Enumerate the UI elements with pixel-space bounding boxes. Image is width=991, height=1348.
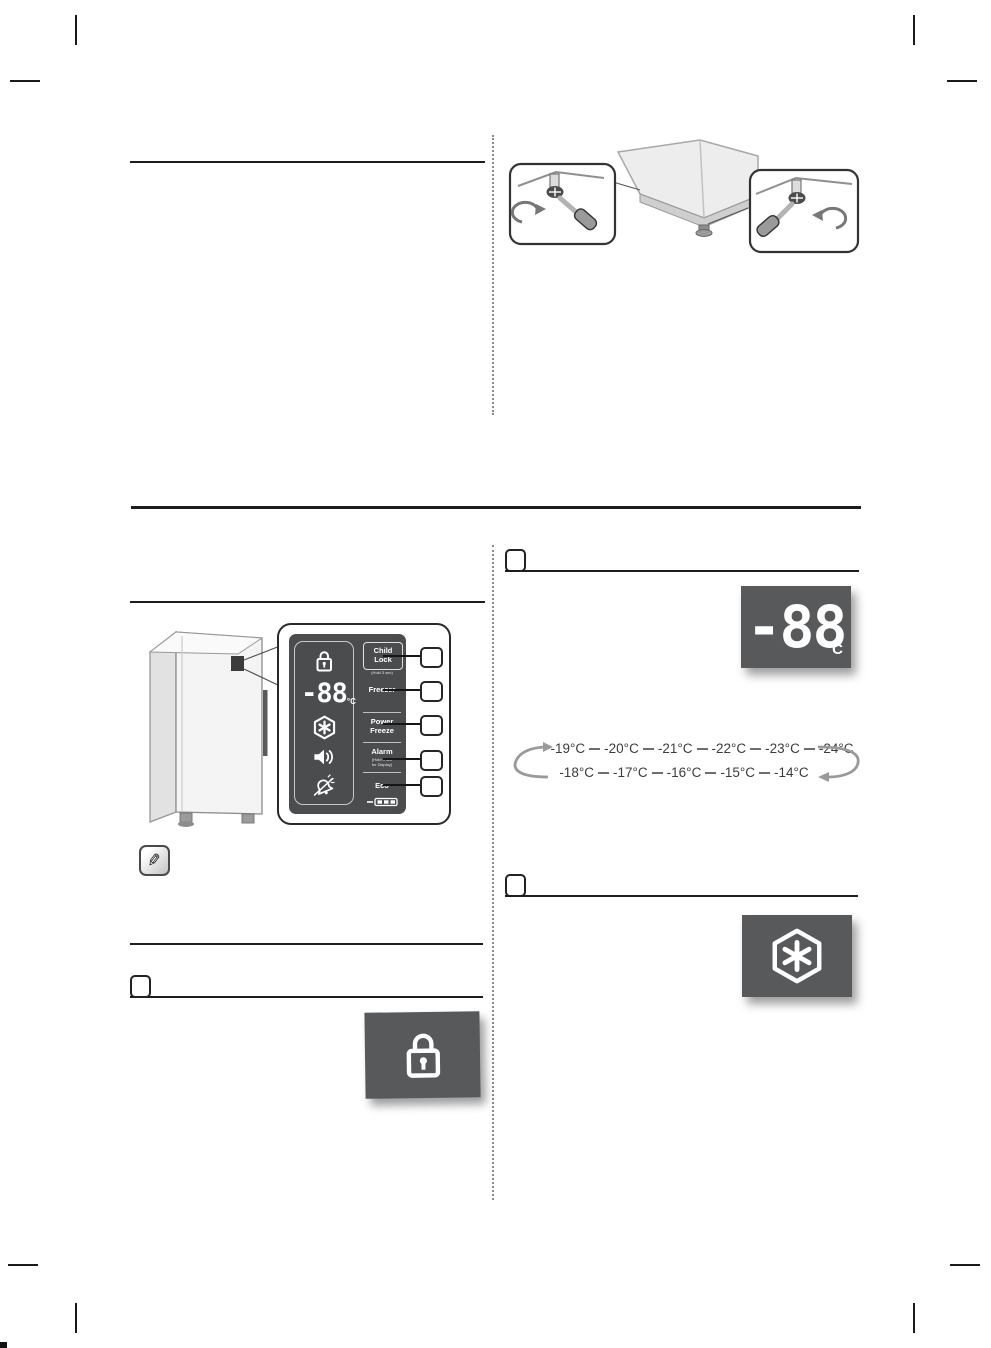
subsection-rule [130, 943, 483, 945]
power-freeze-display-box [742, 915, 852, 997]
temperature-cycle-diagram: -19°C -20°C -21°C -22°C -23°C -24°C -18°… [508, 733, 860, 789]
panel-separator [363, 742, 401, 743]
button-leader-line [383, 655, 422, 657]
panel-sublabel-alarm-2: for Display) [357, 763, 407, 768]
display-temperature-unit: °C [826, 641, 843, 658]
step-rule [505, 570, 859, 572]
child-lock-display-box [364, 1011, 480, 1099]
crop-mark [10, 80, 40, 82]
panel-temperature-value: -88 [301, 678, 347, 709]
padlock-icon [401, 1029, 444, 1082]
button-leader-line [383, 758, 422, 760]
crop-mark [913, 1303, 915, 1333]
note-icon: ✎ [139, 845, 170, 876]
crop-mark [913, 15, 915, 45]
button-leader-line [383, 723, 422, 725]
panel-separator [363, 772, 401, 773]
door-alarm-off-indicator-icon [311, 774, 337, 797]
section-divider-rule [131, 506, 861, 509]
step-rule [505, 895, 858, 897]
panel-button-eco [420, 776, 443, 797]
panel-temperature-unit: °C [347, 698, 356, 706]
crop-mark [947, 80, 977, 82]
panel-separator [363, 712, 401, 713]
button-leader-line [383, 784, 422, 786]
door-gasket [263, 690, 268, 756]
panel-button-power-freeze [420, 715, 443, 736]
section-title-rule [130, 161, 485, 163]
crop-mark [950, 1264, 980, 1266]
panel-button-freezer [420, 681, 443, 702]
manual-page: { "colors": { "display_box_bg": "#58595B… [0, 0, 991, 1348]
panel-temperature-display: -88 °C [301, 680, 347, 707]
right-leg-callout [750, 170, 858, 252]
step-number-box [505, 549, 526, 572]
cycle-arrow-right [812, 735, 866, 787]
left-leg-callout [510, 164, 615, 244]
child-lock-indicator-icon [314, 649, 334, 673]
panel-label-alarm: Alarm [359, 748, 405, 757]
scan-artifact [0, 1342, 7, 1348]
leveling-legs-illustration [500, 132, 870, 264]
snowflake-hexagon-icon [768, 927, 826, 985]
step-number-box [130, 975, 151, 998]
panel-display-area: -88 °C [294, 641, 354, 805]
crop-mark [75, 1303, 77, 1333]
cycle-arrow-left [504, 735, 554, 787]
crop-mark [8, 1264, 38, 1266]
freezer-art [130, 624, 280, 833]
panel-label-power-freeze: Power Freeze [359, 718, 405, 735]
temperature-display-box: -88 °C [741, 586, 851, 668]
step-rule [130, 996, 483, 998]
crop-mark [75, 15, 77, 45]
column-divider [492, 135, 494, 415]
energy-indicator-icon [365, 797, 399, 807]
power-freeze-indicator-icon [312, 715, 337, 740]
column-divider [492, 545, 494, 1200]
step-number-box [505, 874, 526, 897]
subsection-rule [130, 601, 485, 603]
panel-button-alarm [420, 750, 443, 771]
control-panel: -88 °C [277, 623, 451, 825]
control-panel-illustration: -88 °C [130, 618, 464, 833]
panel-sublabel-child-lock: (Hold 3 sec) [357, 671, 407, 676]
panel-location-marker [231, 656, 244, 671]
alarm-indicator-icon [312, 747, 336, 767]
panel-button-child-lock [420, 647, 443, 668]
freezer-corner-art [613, 140, 758, 237]
button-leader-line [383, 689, 422, 691]
